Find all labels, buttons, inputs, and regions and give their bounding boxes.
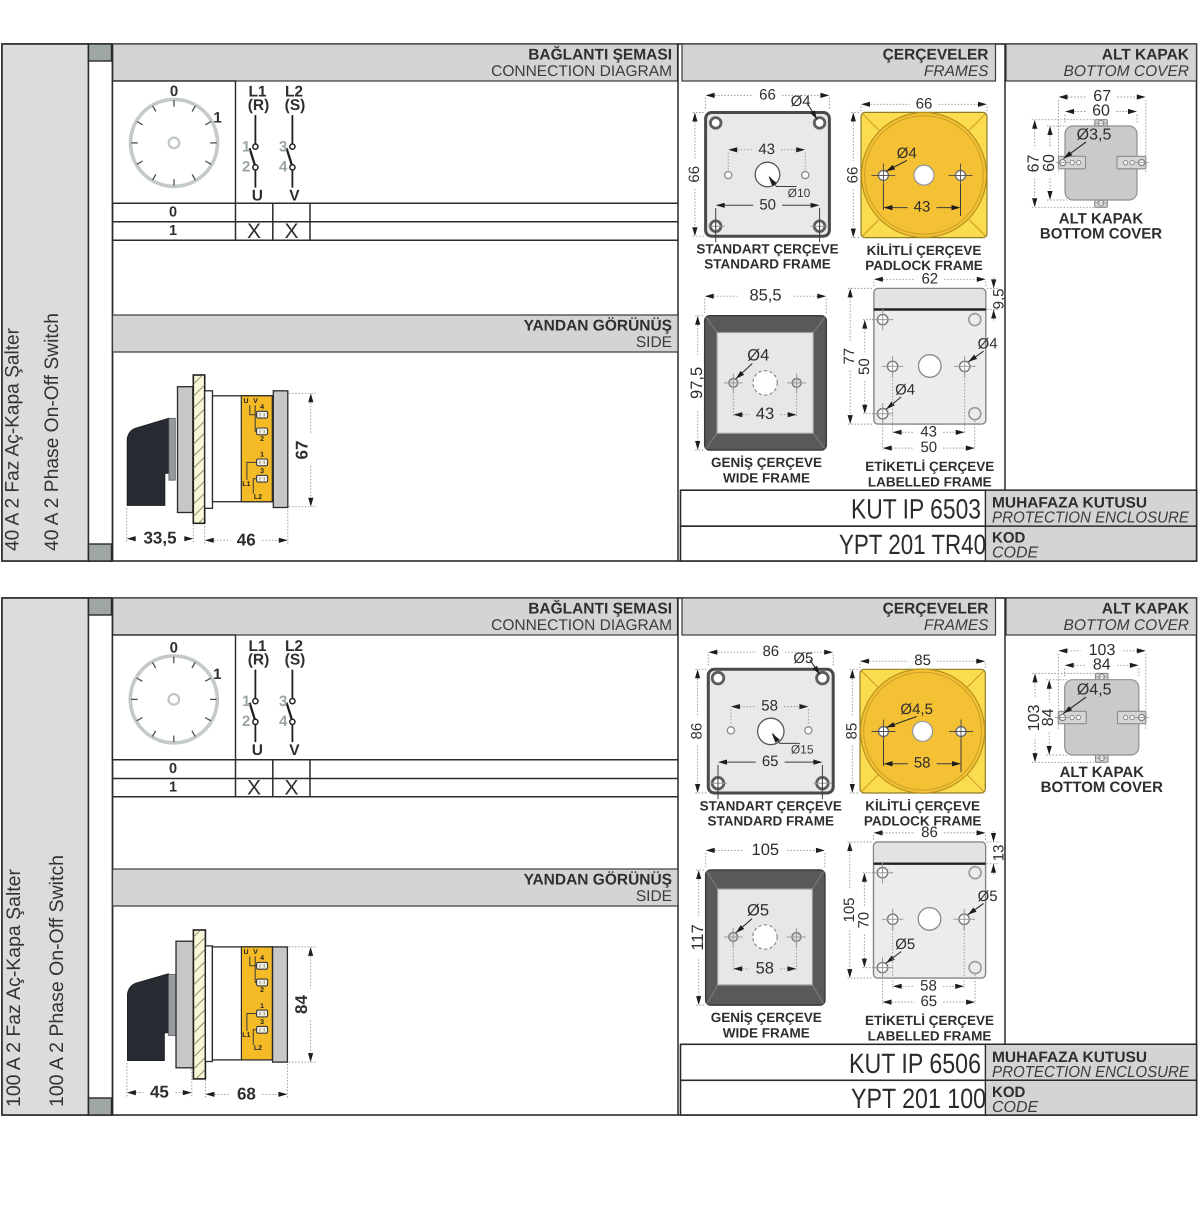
svg-text:84: 84 [1093,656,1111,673]
svg-text:1: 1 [213,109,221,126]
svg-text:60: 60 [1092,103,1110,120]
svg-text:66: 66 [686,166,703,183]
svg-text:FRAMES: FRAMES [924,617,989,634]
svg-text:(R): (R) [248,97,270,114]
svg-text:86: 86 [921,824,938,841]
svg-text:43: 43 [756,405,774,423]
svg-text:YANDAN GÖRÜNÜŞ: YANDAN GÖRÜNÜŞ [524,317,672,335]
svg-text:ETİKETLİ ÇERÇEVE: ETİKETLİ ÇERÇEVE [865,1013,994,1028]
svg-text:Ø5: Ø5 [793,650,813,667]
svg-text:43: 43 [920,423,937,440]
svg-text:STANDART ÇERÇEVE: STANDART ÇERÇEVE [696,242,838,257]
svg-text:CONNECTION DIAGRAM: CONNECTION DIAGRAM [491,617,672,634]
svg-text:ALT KAPAK: ALT KAPAK [1102,47,1190,64]
svg-text:3: 3 [260,468,264,475]
svg-text:(S): (S) [285,97,306,114]
svg-text:V: V [253,949,258,956]
svg-text:1: 1 [260,1003,264,1010]
svg-text:3: 3 [279,693,287,710]
svg-text:100 A 2 Phase On-Off Switch: 100 A 2 Phase On-Off Switch [46,855,68,1107]
svg-text:U: U [252,188,263,205]
svg-text:58: 58 [756,959,774,977]
svg-text:GENİŞ ÇERÇEVE: GENİŞ ÇERÇEVE [711,1010,822,1025]
svg-text:1: 1 [242,693,250,710]
svg-text:(S): (S) [285,652,306,669]
svg-text:PROTECTION ENCLOSURE: PROTECTION ENCLOSURE [992,510,1189,527]
svg-text:86: 86 [689,723,706,740]
svg-text:YPT 201 TR40: YPT 201 TR40 [839,529,986,560]
svg-text:97,5: 97,5 [688,367,706,399]
svg-text:U: U [243,398,248,405]
svg-text:V: V [289,742,300,759]
svg-text:YPT 201 100: YPT 201 100 [851,1083,986,1114]
svg-text:X: X [247,777,261,800]
svg-text:STANDARD FRAME: STANDARD FRAME [704,257,831,272]
svg-text:Ø4: Ø4 [897,145,917,162]
svg-text:LABELLED FRAME: LABELLED FRAME [868,475,992,490]
svg-text:ALT KAPAK: ALT KAPAK [1102,601,1190,618]
svg-text:66: 66 [916,95,933,112]
svg-text:4: 4 [260,955,264,962]
svg-text:BOTTOM COVER: BOTTOM COVER [1041,779,1163,796]
svg-text:62: 62 [921,270,938,287]
svg-text:0: 0 [169,205,177,221]
svg-text:1: 1 [260,452,264,459]
svg-text:Ø4: Ø4 [747,347,769,365]
svg-text:X: X [284,220,298,243]
svg-text:CONNECTION DIAGRAM: CONNECTION DIAGRAM [491,63,672,80]
svg-text:1: 1 [169,780,177,796]
svg-text:84: 84 [292,995,311,1014]
svg-text:4: 4 [279,713,288,730]
svg-text:60: 60 [1041,154,1058,172]
svg-text:V: V [289,188,300,205]
svg-text:FRAMES: FRAMES [924,63,989,80]
svg-text:0: 0 [169,761,177,777]
svg-text:33,5: 33,5 [143,529,176,548]
svg-text:2: 2 [260,436,264,443]
svg-text:ETİKETLİ ÇERÇEVE: ETİKETLİ ÇERÇEVE [865,459,994,474]
svg-text:V: V [253,398,258,405]
svg-text:3: 3 [279,139,287,156]
svg-text:58: 58 [761,698,778,715]
svg-text:105: 105 [752,841,780,859]
svg-text:STANDARD FRAME: STANDARD FRAME [708,814,835,829]
svg-text:85: 85 [914,652,931,669]
svg-text:4: 4 [260,404,264,411]
svg-text:84: 84 [1040,708,1057,726]
svg-text:0: 0 [170,83,178,100]
svg-text:66: 66 [759,86,776,103]
svg-text:1: 1 [242,139,250,156]
svg-text:2: 2 [242,713,250,730]
svg-text:46: 46 [237,530,256,549]
svg-text:Ø4,5: Ø4,5 [900,701,933,718]
svg-text:BOTTOM COVER: BOTTOM COVER [1064,63,1189,80]
svg-text:67: 67 [292,441,311,460]
svg-text:100 A 2 Faz Aç-Kapa Şalter: 100 A 2 Faz Aç-Kapa Şalter [3,869,25,1107]
svg-text:43: 43 [758,141,775,158]
svg-text:PROTECTION ENCLOSURE: PROTECTION ENCLOSURE [992,1064,1189,1081]
svg-text:3: 3 [260,1019,264,1026]
svg-text:Ø4: Ø4 [978,336,998,353]
svg-text:(R): (R) [248,652,270,669]
svg-text:65: 65 [762,753,779,770]
svg-text:KİLİTLİ ÇERÇEVE: KİLİTLİ ÇERÇEVE [867,243,982,258]
svg-text:Ø5: Ø5 [747,902,769,920]
svg-text:BAĞLANTI ŞEMASI: BAĞLANTI ŞEMASI [528,600,672,618]
svg-text:Ø3,5: Ø3,5 [1077,127,1112,144]
svg-text:65: 65 [920,993,937,1010]
svg-text:43: 43 [914,199,931,216]
svg-text:YANDAN GÖRÜNÜŞ: YANDAN GÖRÜNÜŞ [524,871,672,889]
svg-text:13: 13 [991,845,1008,862]
svg-text:Ø15: Ø15 [791,743,814,757]
svg-text:X: X [247,220,261,243]
svg-text:117: 117 [689,924,707,950]
svg-text:85,5: 85,5 [749,287,781,305]
svg-text:STANDART ÇERÇEVE: STANDART ÇERÇEVE [700,799,842,814]
svg-text:2: 2 [260,987,264,994]
svg-text:Ø5: Ø5 [978,888,998,905]
svg-text:BOTTOM COVER: BOTTOM COVER [1040,226,1162,243]
svg-text:U: U [252,742,263,759]
svg-text:86: 86 [762,643,779,660]
svg-text:X: X [284,777,298,800]
svg-text:WIDE FRAME: WIDE FRAME [723,1026,810,1041]
svg-text:ÇERÇEVELER: ÇERÇEVELER [883,47,989,64]
svg-text:Ø5: Ø5 [895,936,915,953]
svg-text:68: 68 [237,1084,256,1103]
svg-text:KİLİTLİ ÇERÇEVE: KİLİTLİ ÇERÇEVE [865,799,980,814]
svg-text:40 A 2 Phase On-Off Switch: 40 A 2 Phase On-Off Switch [41,313,63,551]
svg-text:58: 58 [914,755,931,772]
svg-text:Ø4: Ø4 [791,93,811,110]
svg-text:L1: L1 [242,1032,250,1039]
svg-text:2: 2 [242,159,250,176]
svg-text:GENİŞ ÇERÇEVE: GENİŞ ÇERÇEVE [711,455,822,470]
svg-text:50: 50 [856,358,873,375]
svg-text:CODE: CODE [992,1099,1039,1116]
svg-text:4: 4 [279,159,288,176]
svg-text:L1: L1 [242,481,250,488]
svg-text:CODE: CODE [992,545,1039,562]
svg-text:50: 50 [759,196,776,213]
svg-text:58: 58 [920,977,937,994]
svg-text:KUT IP 6506: KUT IP 6506 [849,1048,981,1079]
svg-text:1: 1 [169,223,177,239]
svg-text:Ø10: Ø10 [788,186,811,200]
svg-text:SIDE: SIDE [636,888,672,905]
svg-text:50: 50 [920,439,937,456]
svg-text:0: 0 [170,639,178,656]
svg-text:BAĞLANTI ŞEMASI: BAĞLANTI ŞEMASI [528,46,672,64]
svg-text:9,5: 9,5 [991,288,1008,309]
svg-text:40 A 2 Faz Aç-Kapa Şalter: 40 A 2 Faz Aç-Kapa Şalter [2,328,24,551]
svg-text:SIDE: SIDE [636,334,672,351]
svg-text:U: U [243,949,248,956]
svg-text:Ø4: Ø4 [895,382,915,399]
svg-text:BOTTOM COVER: BOTTOM COVER [1064,617,1189,634]
svg-text:1: 1 [213,666,221,683]
svg-text:Ø4,5: Ø4,5 [1077,682,1112,699]
svg-text:L2: L2 [254,494,262,501]
svg-text:70: 70 [855,912,872,929]
svg-text:45: 45 [150,1083,169,1102]
svg-text:66: 66 [844,167,861,184]
svg-text:WIDE FRAME: WIDE FRAME [723,471,810,486]
svg-text:ÇERÇEVELER: ÇERÇEVELER [883,601,989,618]
svg-text:LABELLED FRAME: LABELLED FRAME [868,1029,992,1044]
svg-text:KUT IP 6503: KUT IP 6503 [851,494,981,525]
svg-text:85: 85 [843,723,860,740]
svg-text:L2: L2 [254,1045,262,1052]
